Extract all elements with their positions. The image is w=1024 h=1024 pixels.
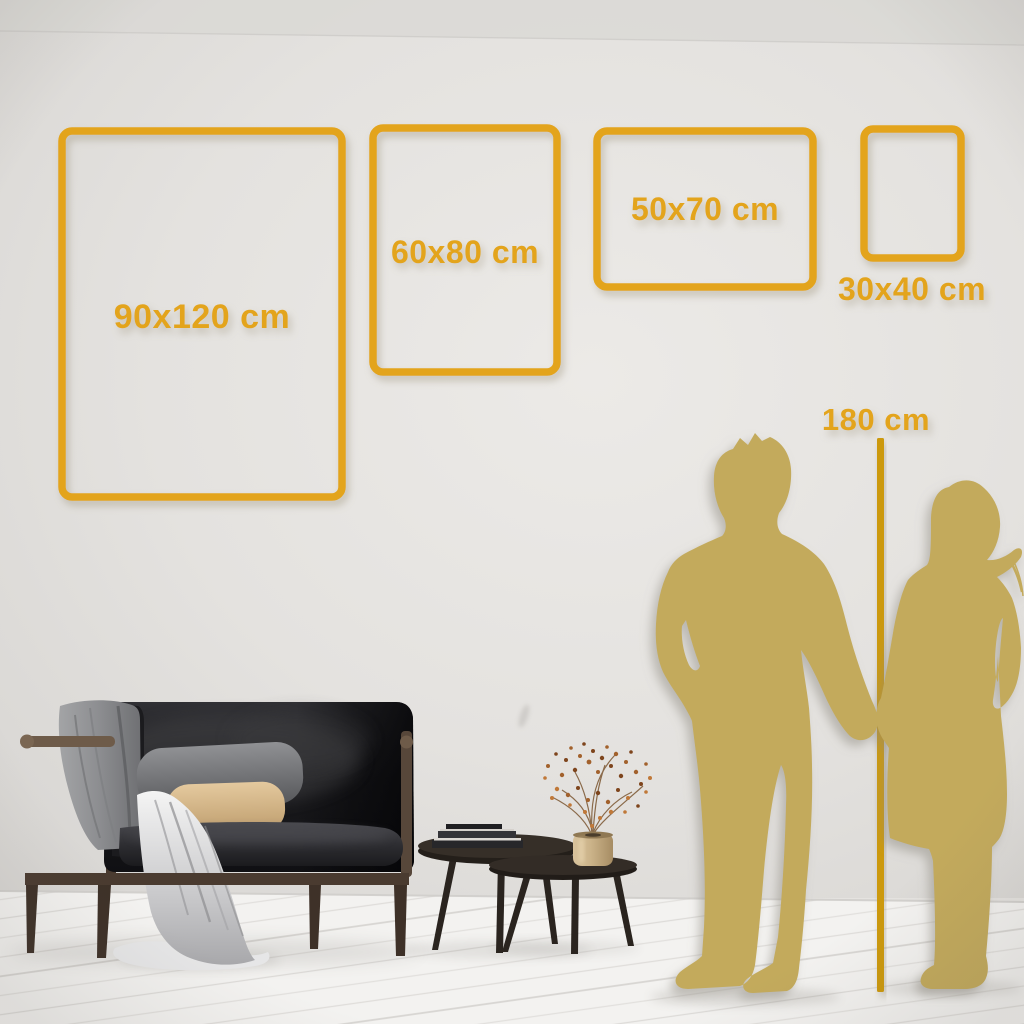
vignette-overlay [0,0,1024,1024]
scene-canvas: 90x120 cm 60x80 cm 50x70 cm 30x40 cm 180… [0,0,1024,1024]
poster-size-guide-scene: 90x120 cm 60x80 cm 50x70 cm 30x40 cm 180… [0,0,1024,1024]
